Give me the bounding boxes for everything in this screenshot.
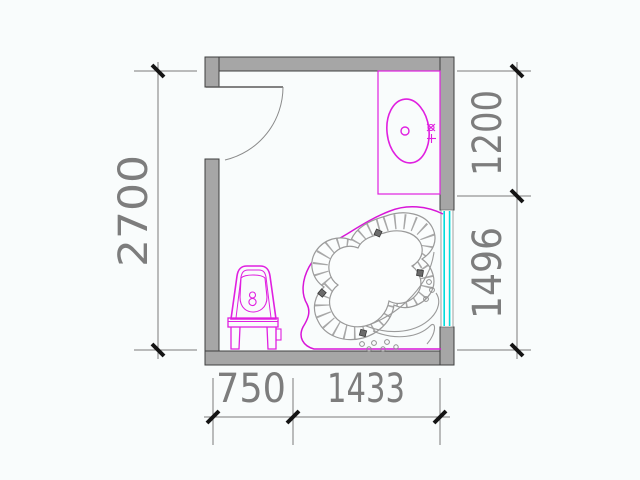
floorplan-canvas[interactable]: 2700 1200 1496 750 1433 [0,0,640,480]
window-frame [441,210,453,327]
paper-background [0,0,640,480]
wall-right-upper [440,57,454,210]
dim-label-bottom-left: 750 [216,366,286,412]
wall-bottom [205,351,454,365]
dim-label-right-top: 1200 [465,90,511,176]
wall-left-lower [205,159,219,365]
window [441,210,453,327]
dim-label-bottom-right: 1433 [327,366,405,412]
wall-top [205,57,454,71]
dim-label-left: 2700 [111,155,157,267]
dim-label-right-bottom: 1496 [465,227,511,319]
